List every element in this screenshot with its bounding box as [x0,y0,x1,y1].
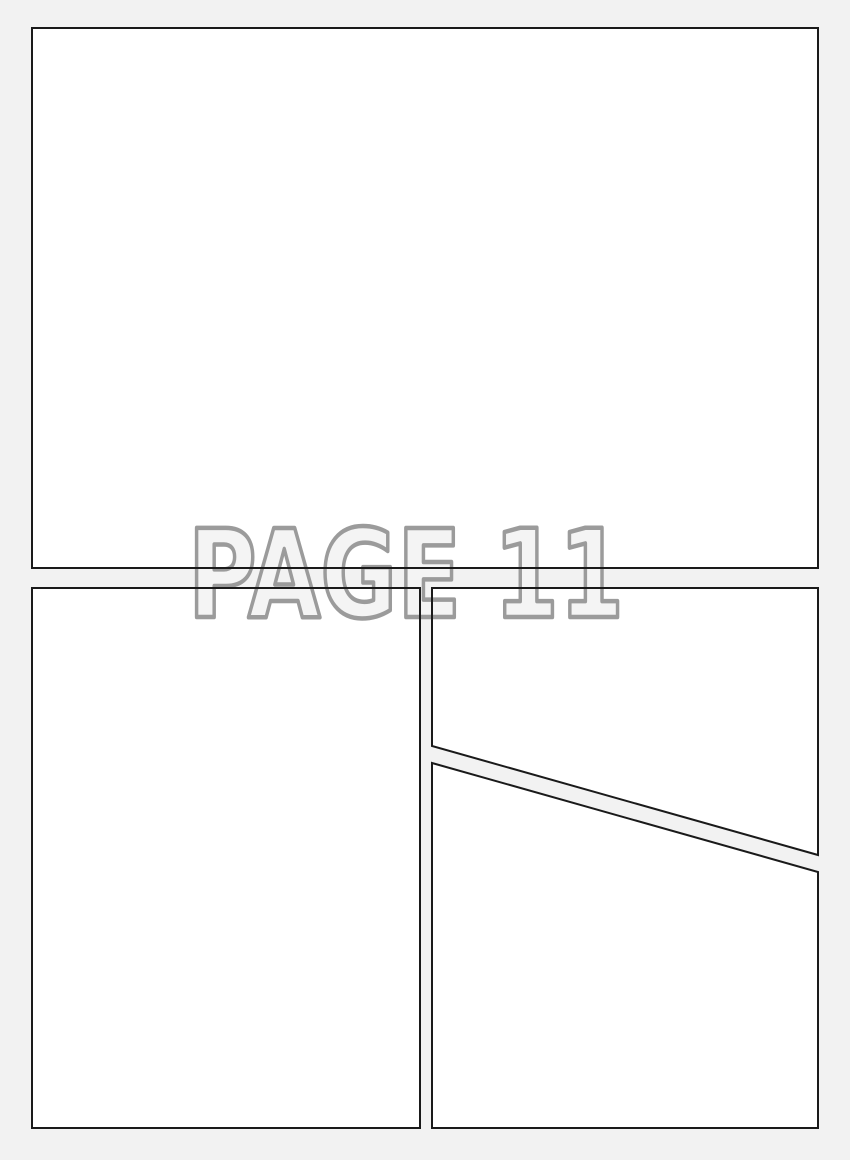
page-title: PAGE 11 [188,504,624,646]
comic-template-canvas: PAGE 11 [0,0,850,1160]
comic-page-template: PAGE 11 [0,0,850,1160]
panel-top-fill [32,28,818,568]
panel-bottom-left-fill [32,588,420,1128]
